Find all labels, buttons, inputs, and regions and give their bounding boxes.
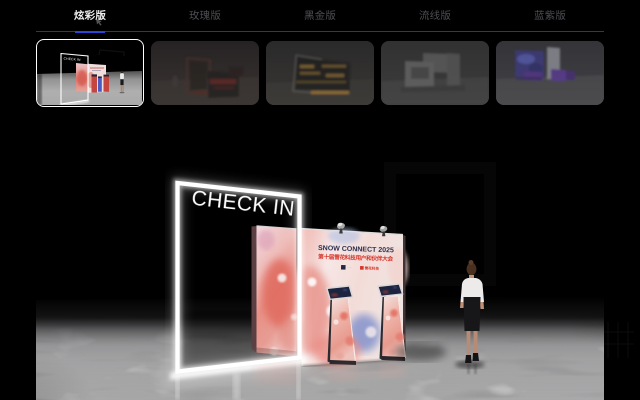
svg-text:CHECK IN: CHECK IN [63,57,81,63]
svg-text:雪花科技: 雪花科技 [365,265,380,270]
svg-text:····: ···· [347,266,351,270]
